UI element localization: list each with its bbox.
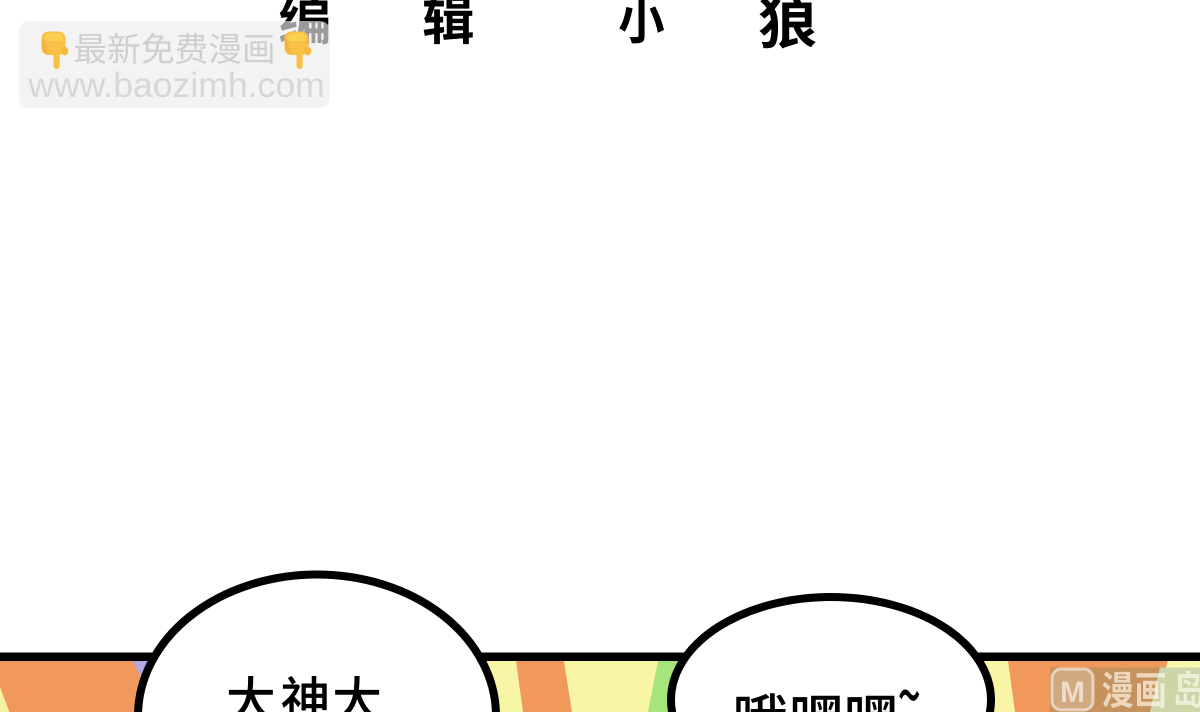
svg-text:www.baozimh.com: www.baozimh.com bbox=[27, 65, 325, 105]
svg-text:M: M bbox=[1060, 676, 1085, 709]
